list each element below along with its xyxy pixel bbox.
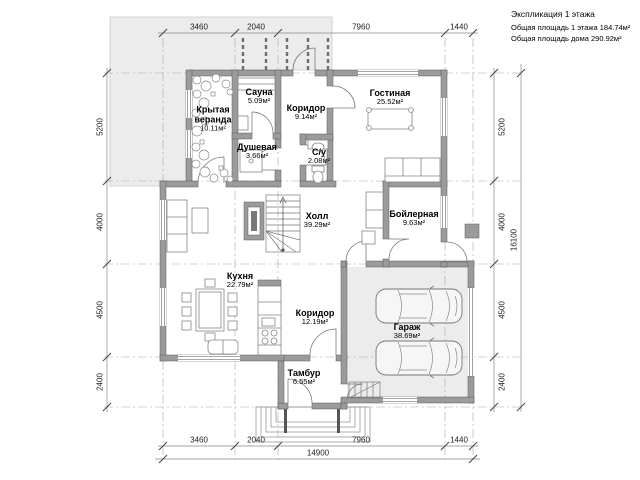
dim-top-3460: 3460: [190, 23, 208, 32]
dim-right-5200: 5200: [498, 118, 507, 136]
garage-floor: [347, 267, 468, 397]
dim-left-4500: 4500: [96, 301, 105, 319]
dim-top-2040: 2040: [247, 23, 265, 32]
dim-right-4000: 4000: [498, 213, 507, 231]
dim-bottom-1440: 1440: [450, 436, 468, 445]
staircase: [266, 195, 300, 252]
dim-right-2400: 2400: [498, 373, 507, 391]
floorplan-page: Экспликация 1 этажа Общая площадь 1 этаж…: [0, 0, 640, 480]
dim-bottom-3460: 3460: [190, 436, 208, 445]
dim-top-7960: 7960: [352, 23, 370, 32]
dim-left-2400: 2400: [96, 373, 105, 391]
fireplace: [244, 202, 264, 240]
dim-total-height: 16100: [510, 229, 519, 251]
terrace-area: [110, 17, 332, 186]
dim-bottom-7960: 7960: [352, 436, 370, 445]
dim-top-1440: 1440: [450, 23, 468, 32]
dim-left-5200: 5200: [96, 118, 105, 136]
legend-block: Экспликация 1 этажа Общая площадь 1 этаж…: [511, 9, 639, 45]
dim-right-4500: 4500: [498, 301, 507, 319]
legend-title: Экспликация 1 этажа: [511, 9, 639, 19]
veranda-plants: [192, 74, 233, 182]
dim-left-4000: 4000: [96, 213, 105, 231]
legend-area-house: Общая площадь дома 290.92м²: [511, 34, 639, 43]
legend-area-floor: Общая площадь 1 этажа 184.74м²: [511, 23, 639, 32]
floorplan-drawing: [0, 0, 640, 480]
dim-bottom-2040: 2040: [247, 436, 265, 445]
dim-total-width: 14900: [307, 449, 329, 458]
